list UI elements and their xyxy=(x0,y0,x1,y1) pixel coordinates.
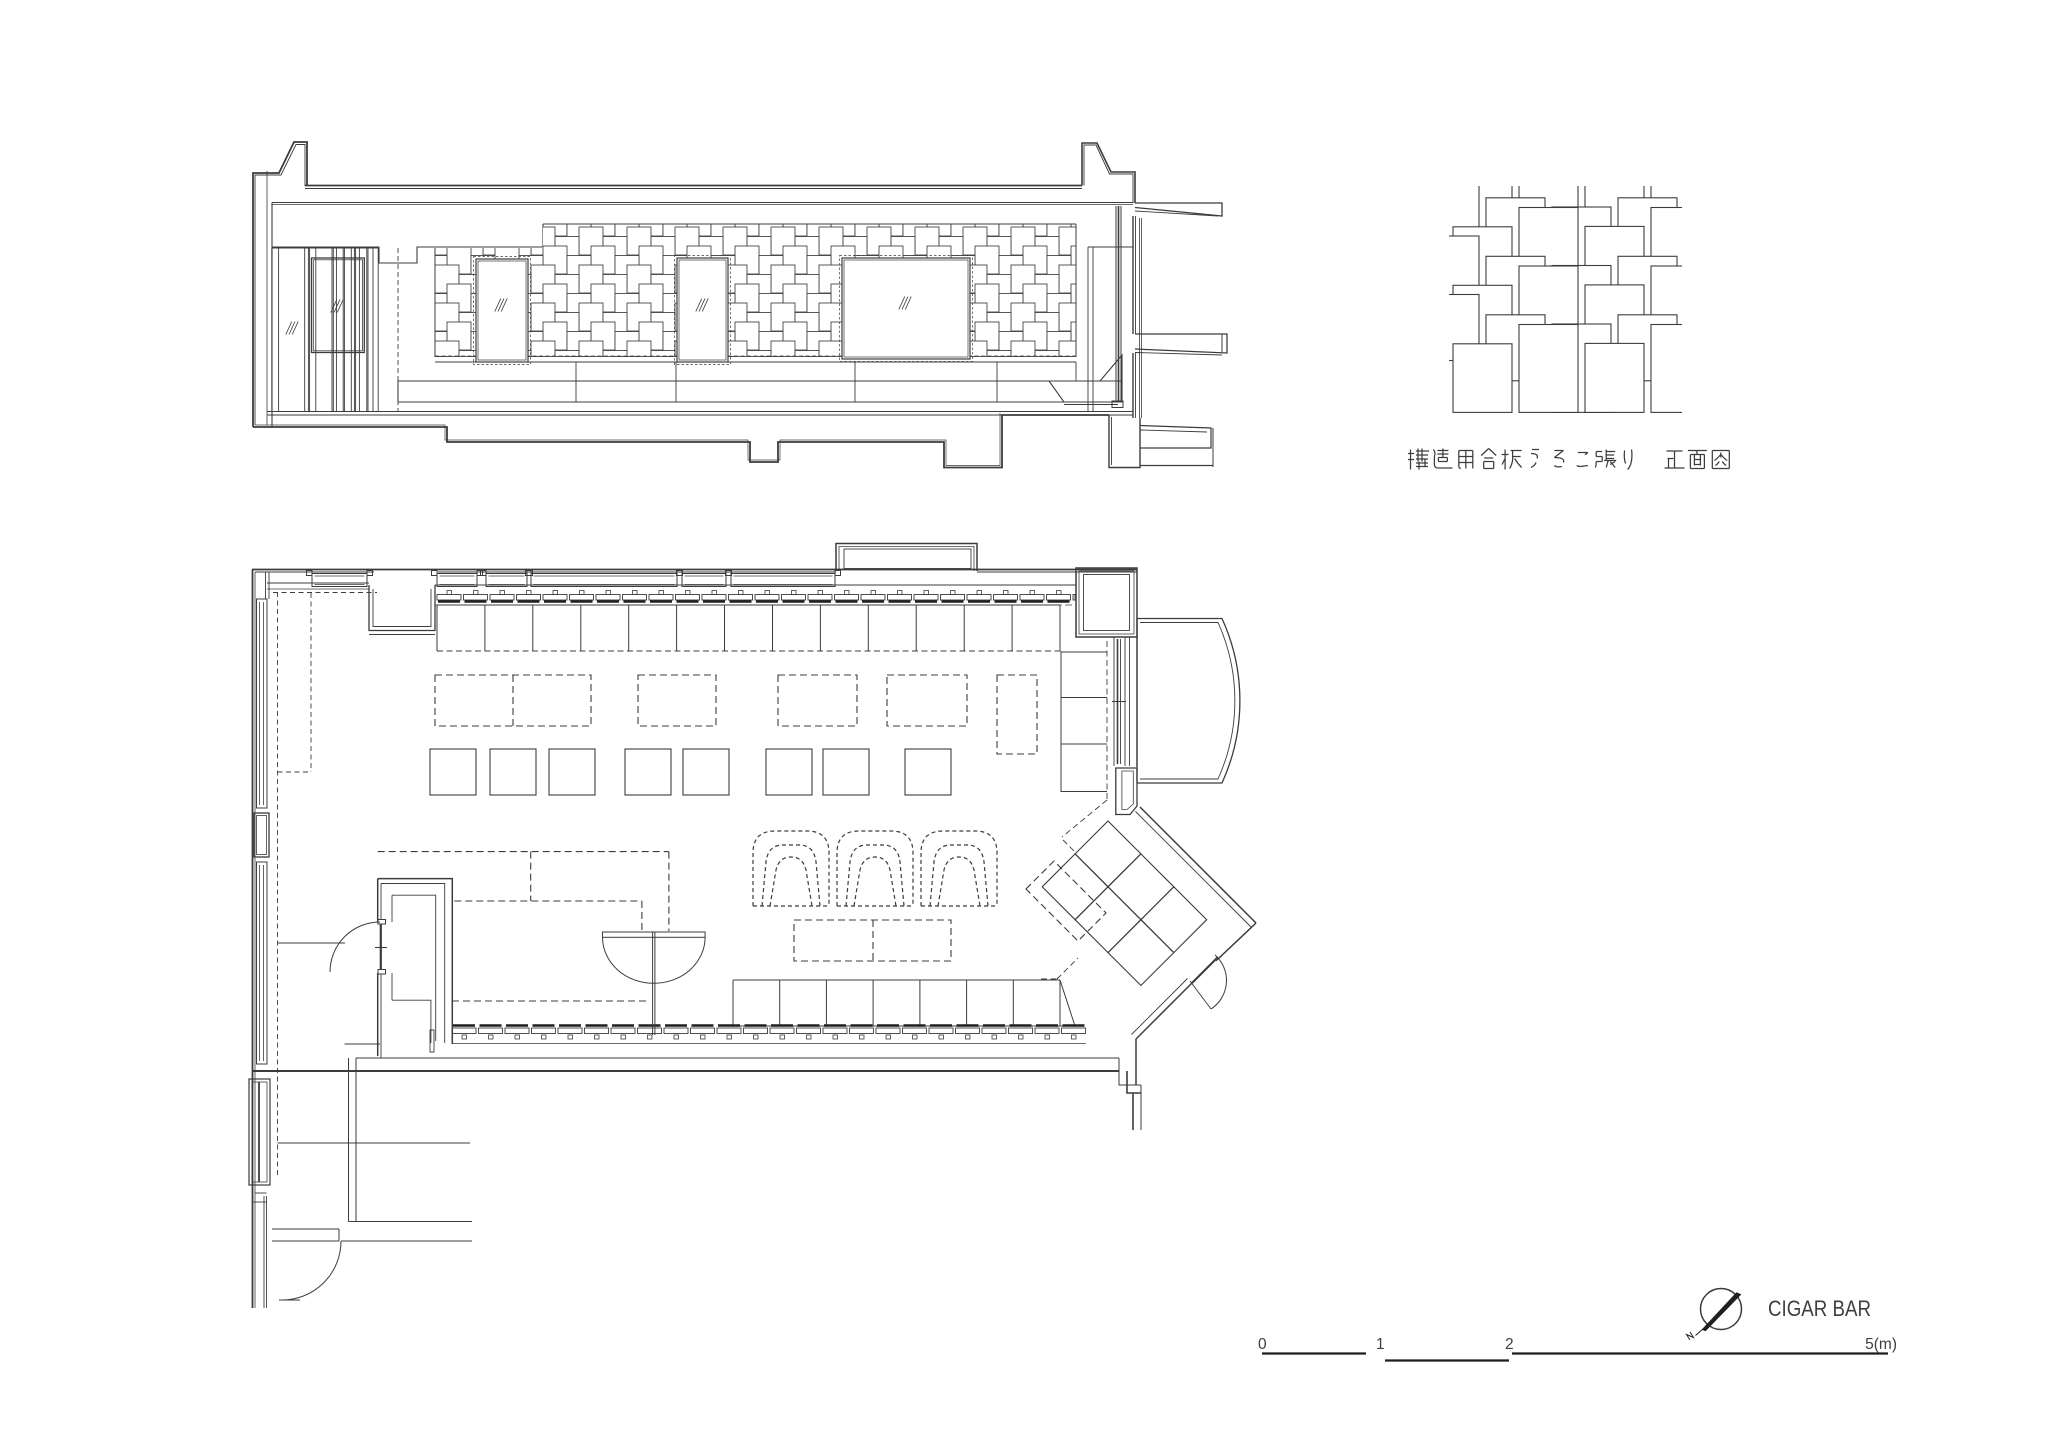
svg-text:5(m): 5(m) xyxy=(1865,1336,1897,1353)
svg-text:1: 1 xyxy=(1376,1336,1385,1353)
svg-text:2: 2 xyxy=(1505,1336,1514,1353)
svg-text:CIGAR BAR: CIGAR BAR xyxy=(1768,1296,1871,1321)
svg-text:0: 0 xyxy=(1258,1336,1267,1353)
